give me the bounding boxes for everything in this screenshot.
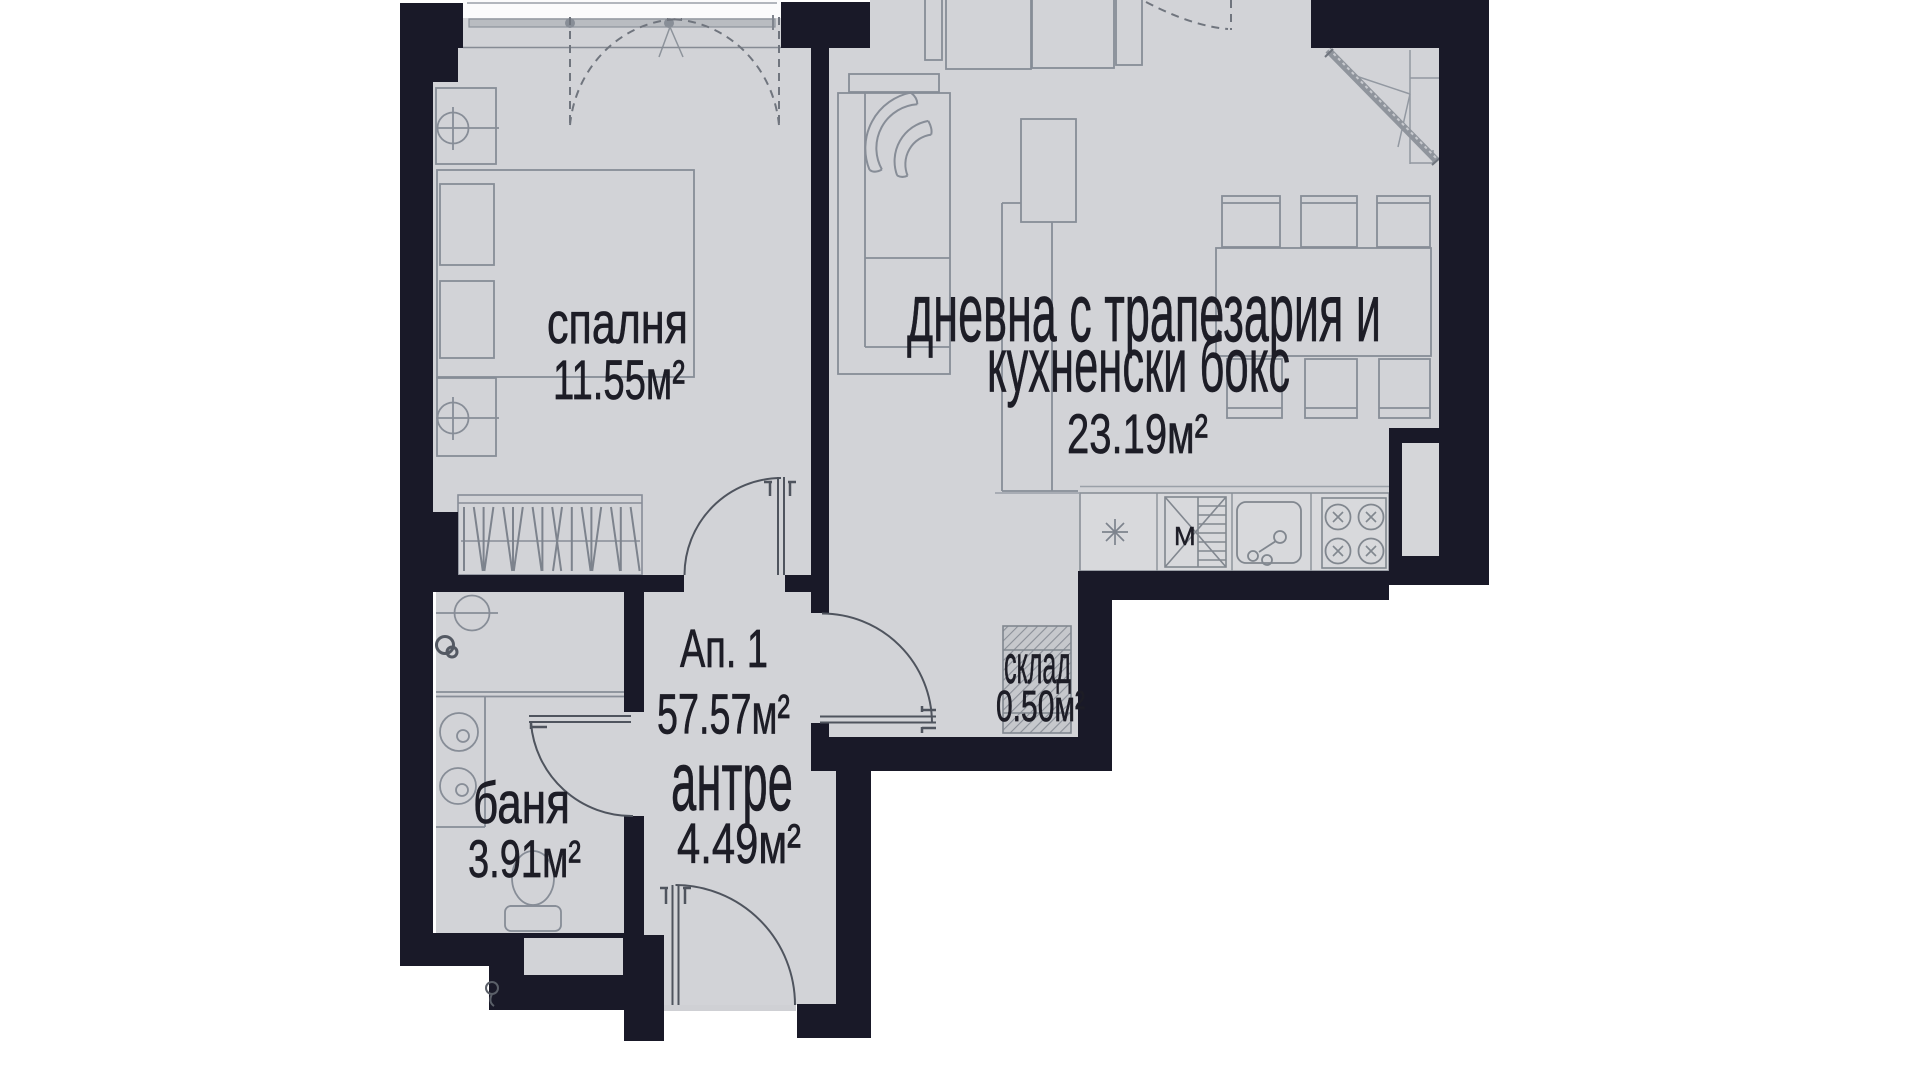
svg-text:4.49м²: 4.49м² xyxy=(677,812,801,876)
svg-text:М: М xyxy=(1174,521,1196,551)
svg-text:спалня: спалня xyxy=(547,291,688,356)
svg-text:3.91м²: 3.91м² xyxy=(468,829,581,888)
svg-text:кухненски бокс: кухненски бокс xyxy=(987,323,1290,408)
svg-text:Ап. 1: Ап. 1 xyxy=(680,619,768,679)
svg-text:23.19м²: 23.19м² xyxy=(1067,404,1208,465)
svg-text:0.50м²: 0.50м² xyxy=(996,684,1085,732)
svg-text:11.55м²: 11.55м² xyxy=(553,350,685,411)
svg-text:баня: баня xyxy=(473,771,570,836)
